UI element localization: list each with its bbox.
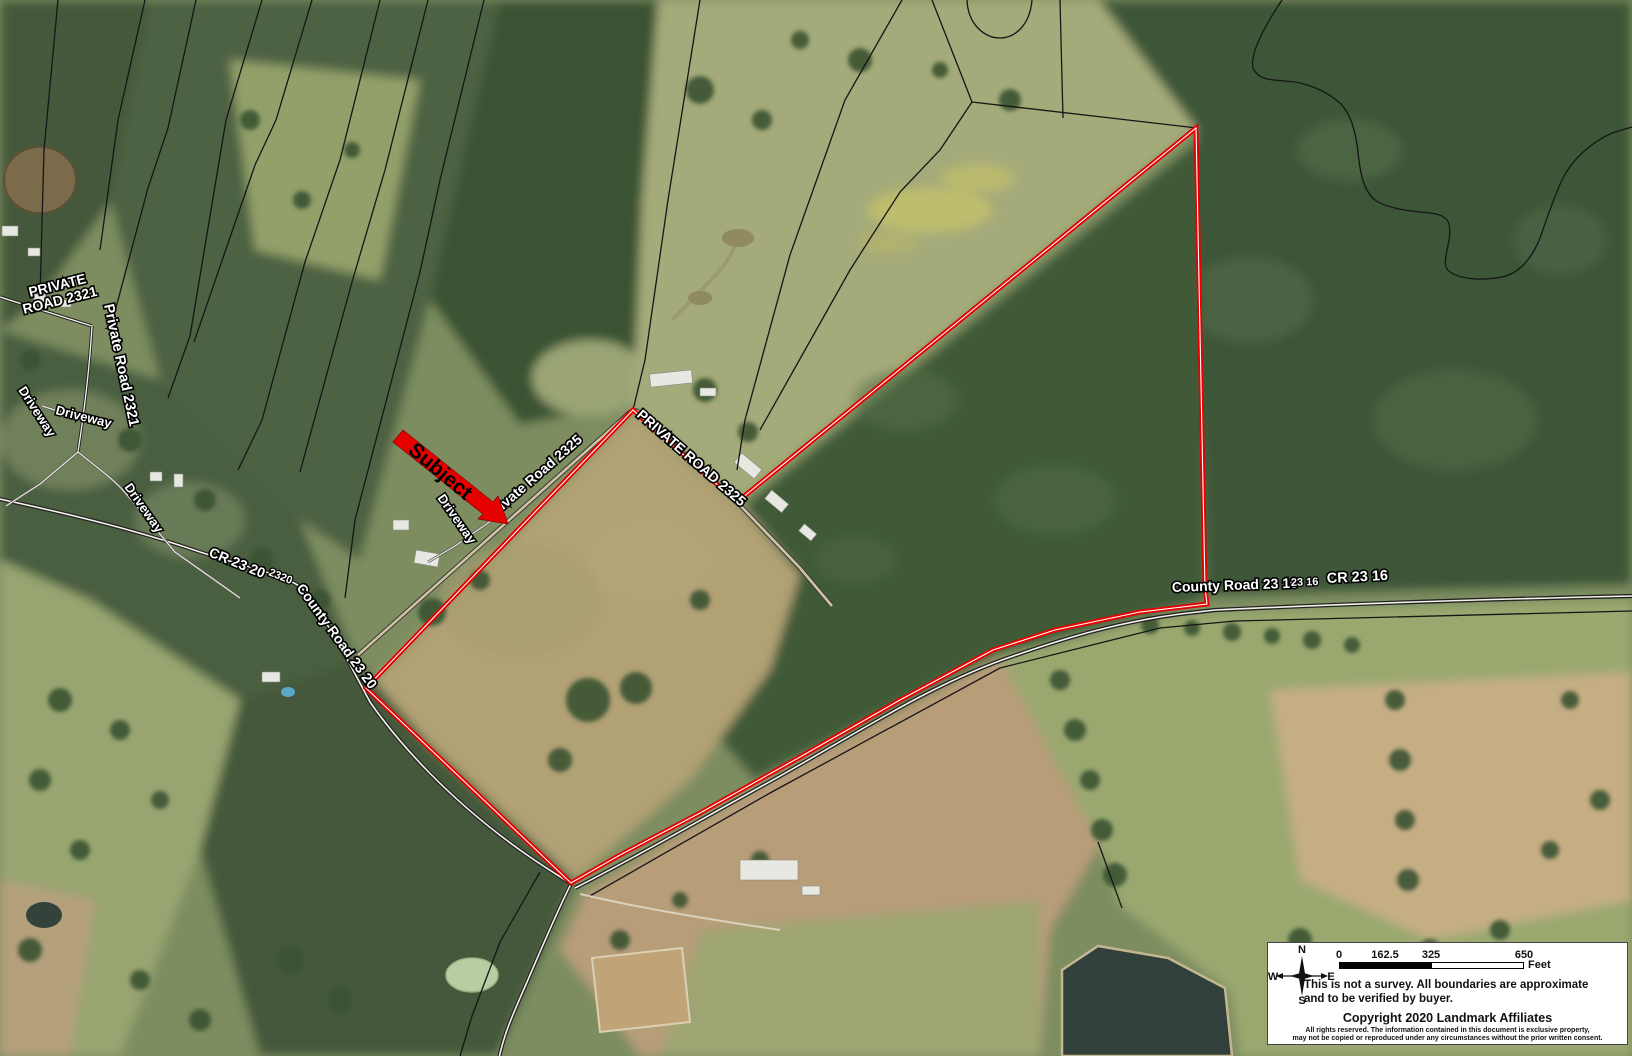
disclaimer-line2: and to be verified by buyer. [1304,993,1588,1007]
label-cr-23-16: CR 23 16 [1326,568,1388,587]
aerial-map-page: PRIVATE ROAD 2321 Private Road 2321 Driv… [0,0,1632,1056]
disclaimer-text: This is not a survey. All boundaries are… [1304,979,1588,1006]
scale-tick-2: 325 [1422,949,1440,961]
scale-bar-empty [1431,962,1524,969]
label-cr-23-16-short: 23 16 [1291,576,1319,589]
landcover [0,0,1632,1056]
scale-bar-filled [1339,962,1431,969]
scale-unit: Feet [1528,959,1551,971]
legend-box: 0 162.5 325 650 Feet N S W E This is not… [1267,942,1628,1045]
copyright-text: Copyright 2020 Landmark Affiliates [1268,1011,1627,1025]
disclaimer-line1: This is not a survey. All boundaries are… [1304,979,1588,993]
fine-print-line1: All rights reserved. The information con… [1268,1027,1627,1035]
compass-w: W [1268,971,1279,983]
fine-print-line2: may not be copied or reproduced under an… [1268,1035,1627,1043]
scale-tick-1: 162.5 [1371,949,1399,961]
fine-print: All rights reserved. The information con… [1268,1027,1627,1043]
aerial-map: PRIVATE ROAD 2321 Private Road 2321 Driv… [0,0,1632,1056]
scale-tick-0: 0 [1336,949,1342,961]
compass-n: N [1298,944,1306,956]
